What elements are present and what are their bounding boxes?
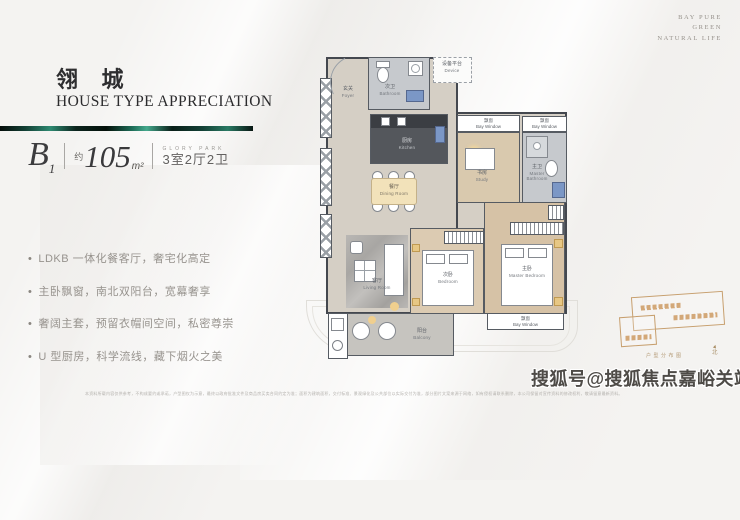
feature-item: LDKB 一体化餐客厅，奢宅化高定 [28, 250, 234, 266]
pillow-icon [449, 254, 468, 264]
room-label-kitchen: 厨房Kitchen [387, 138, 427, 150]
spec-separator [152, 143, 153, 169]
linen-closet [548, 205, 564, 220]
balcony-chair-icon [352, 322, 370, 340]
laundry-sink-icon [331, 318, 344, 331]
bay-window-masterbath: 飘窗Bay Window [522, 116, 567, 132]
north-arrow: ▲ 北 [712, 344, 718, 356]
bay-window-study: 飘窗Bay Window [457, 115, 520, 132]
balcony-table-icon [368, 316, 376, 324]
room-label-master-bathroom: 主卫Master Bathroom [521, 164, 553, 182]
nightstand-icon [554, 239, 563, 248]
shower-head-icon [533, 142, 541, 150]
site-buildings [641, 303, 681, 311]
site-buildings [673, 312, 717, 320]
feature-item: 奢阔主套，预留衣帽间空间，私密尊崇 [28, 315, 234, 331]
feature-list: LDKB 一体化餐客厅，奢宅化高定 主卧飘窗，南北双阳台，宽幕奢享 奢阔主套，预… [28, 250, 234, 380]
room-label-master-bedroom: 主卧Master Bedroom [504, 266, 550, 278]
brand-line: GREEN [657, 23, 722, 33]
feature-item: U 型厨房，科学流线，藏下烟火之美 [28, 348, 234, 364]
fridge-icon [435, 126, 445, 143]
unit-layout: GLORY PARK 3室2厅2卫 [162, 146, 229, 168]
wardrobe [444, 231, 484, 244]
disclaimer-text: 本资料所载内容仅供参考，不构成要约或承诺，户型图仅为示意，最终以政府批准文件及商… [85, 391, 660, 397]
north-label: 北 [712, 350, 718, 356]
watermark: 搜狐号@搜狐焦点嘉峪关站 [531, 365, 740, 391]
nightstand-icon [412, 244, 420, 252]
window-wall [320, 214, 332, 258]
unit-type: B1 [28, 138, 55, 175]
room-label-bedroom2: 次卧Bedroom [426, 272, 470, 284]
sink-icon [397, 117, 406, 126]
page-title: 翎 城 [56, 62, 133, 94]
wardrobe [510, 222, 564, 235]
nightstand-icon [554, 297, 563, 306]
site-plan-sketch: 户型分布图 ▲ 北 [618, 292, 738, 362]
site-plan-caption: 户型分布图 [646, 352, 684, 359]
site-block-outline [619, 315, 657, 347]
sink-icon [406, 90, 424, 102]
site-buildings [625, 334, 651, 341]
room-label-bathroom2: 次卫Bathroom [372, 84, 408, 96]
page-subtitle: HOUSE TYPE APPRECIATION [56, 93, 272, 111]
room-label-balcony: 阳台Balcony [402, 328, 442, 340]
washer-icon [332, 340, 343, 351]
toilet-icon [377, 67, 389, 83]
washer-drum-icon [411, 64, 420, 73]
pillow-icon [528, 248, 547, 258]
armchair-icon [350, 241, 363, 254]
bay-window-master: 飘窗Bay Window [487, 313, 564, 330]
balcony-chair-icon [378, 322, 396, 340]
brand-tagline: BAY PURE GREEN NATURAL LIFE [657, 13, 722, 44]
stove-icon [381, 117, 390, 126]
coffee-table-line [355, 270, 375, 271]
nightstand-icon [412, 298, 420, 306]
malachite-divider [0, 126, 253, 131]
room-label-foyer: 玄关Foyer [328, 86, 368, 98]
floor-plan: 玄关Foyer 次卫Bathroom 设备平台Device 厨房Kitchen … [302, 52, 568, 364]
window-wall [320, 148, 332, 206]
brand-line: BAY PURE [657, 13, 722, 23]
spec-separator [64, 143, 65, 169]
desk-icon [465, 148, 495, 170]
unit-area-value: 105 [84, 141, 131, 172]
unit-area-unit: m² [132, 161, 144, 175]
room-label-device: 设备平台Device [434, 61, 470, 73]
pillow-icon [505, 248, 524, 258]
room-label-dining: 餐厅Dining Room [372, 184, 416, 196]
room-count: 3室2厅2卫 [162, 152, 229, 168]
unit-area-approx: 约 [74, 150, 83, 163]
room-label-living: 客厅Living Room [350, 278, 404, 290]
pillow-icon [426, 254, 445, 264]
unit-spec: B1 约 105 m² GLORY PARK 3室2厅2卫 [28, 138, 229, 175]
pouf-icon [390, 302, 399, 311]
room-label-study: 书房Study [462, 170, 502, 182]
sink-icon [552, 182, 565, 198]
brand-line: NATURAL LIFE [657, 34, 722, 44]
feature-item: 主卧飘窗，南北双阳台，宽幕奢享 [28, 283, 234, 299]
